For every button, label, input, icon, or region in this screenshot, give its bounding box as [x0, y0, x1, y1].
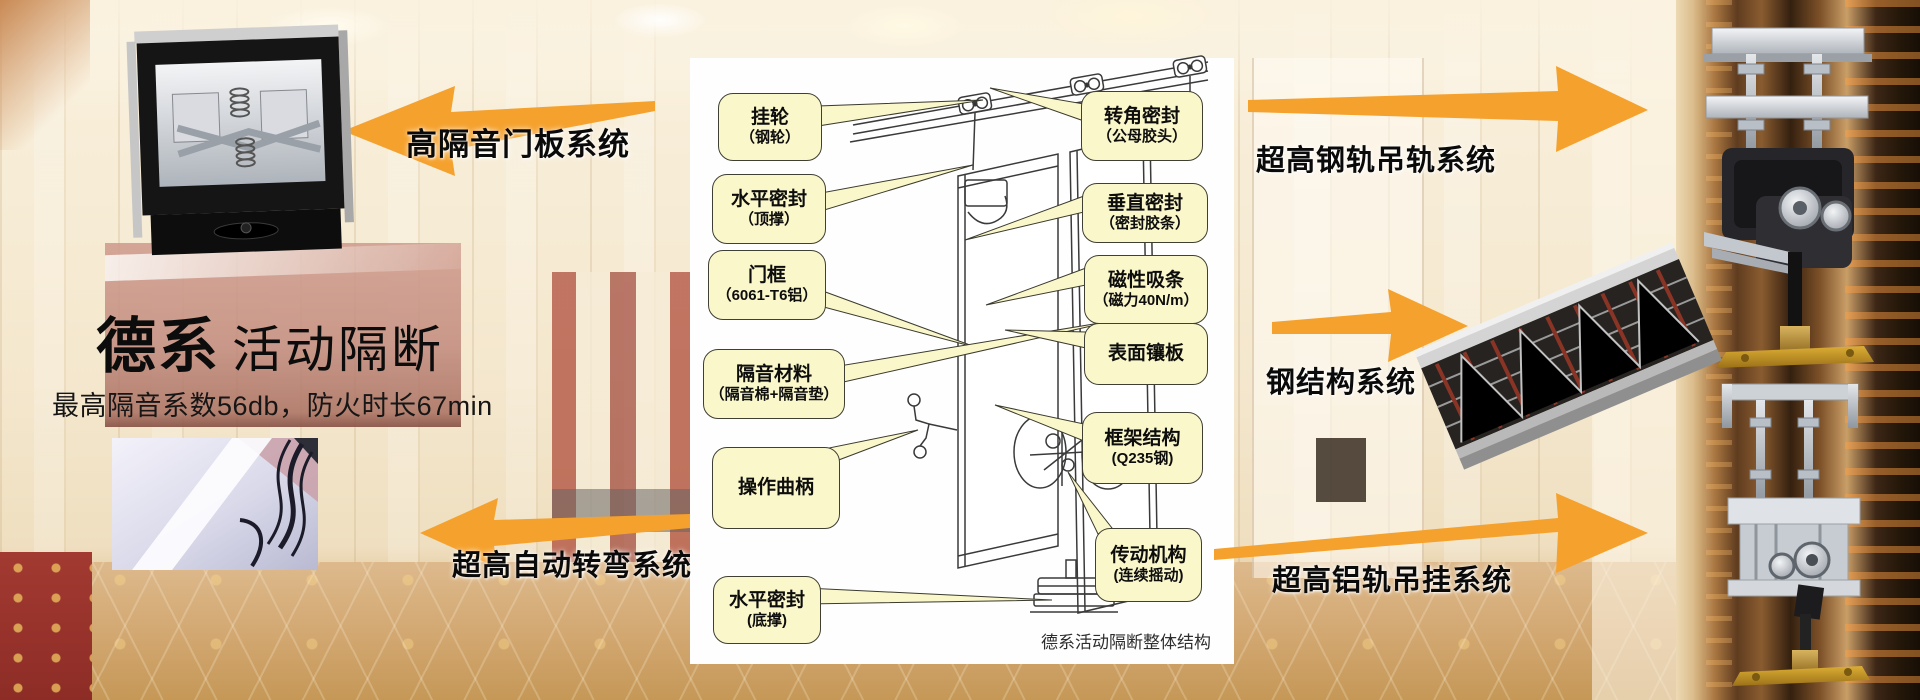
title-subtitle: 最高隔音系数56db，防火时长67min — [52, 384, 493, 423]
callout-text: 水平密封 — [729, 589, 805, 612]
label-steel-rail-system: 超高钢轨吊轨系统 — [1254, 137, 1498, 179]
title-brand: 德系 — [96, 298, 220, 385]
callout-text: 操作曲柄 — [738, 476, 814, 499]
callout-text: （顶撑） — [739, 211, 799, 229]
callout-text: （磁力40N/m） — [1093, 292, 1198, 310]
callout-frame-structure: 框架结构 (Q235钢) — [1082, 412, 1203, 484]
callout-text: 表面镶板 — [1108, 342, 1184, 365]
photo-steel-truss — [1414, 242, 1722, 469]
infographic-canvas: 德系 活动隔断 最高隔音系数56db，防火时长67min 高隔音门板系统 超高自… — [0, 0, 1920, 700]
callout-text: 传动机构 — [1110, 544, 1186, 567]
callout-text: 转角密封 — [1104, 105, 1180, 128]
callout-text: 垂直密封 — [1107, 192, 1183, 215]
callout-text: (Q235钢) — [1112, 450, 1174, 468]
callout-door-frame: 门框 （6061-T6铝） — [708, 250, 826, 320]
title-product: 活动隔断 — [232, 310, 444, 382]
callout-horizontal-seal-top: 水平密封 （顶撑） — [712, 174, 826, 244]
page-title: 德系 活动隔断 — [96, 298, 444, 385]
diagram-caption: 德系活动隔断整体结构 — [1041, 628, 1211, 653]
photo-aluminum-trolley — [1722, 384, 1870, 686]
label-alu-rail-system: 超高铝轨吊挂系统 — [1270, 557, 1514, 599]
callout-text: 水平密封 — [731, 188, 807, 211]
callout-text: (连续摇动) — [1114, 567, 1184, 585]
label-door-panel-system: 高隔音门板系统 — [374, 119, 662, 164]
callout-transmission: 传动机构 (连续摇动) — [1095, 528, 1202, 602]
photo-door-panel-mechanism — [126, 24, 355, 256]
callout-text: （公母胶头） — [1097, 128, 1187, 146]
photo-curved-track — [112, 438, 318, 570]
label-auto-turn-system: 超高自动转弯系统 — [450, 542, 694, 584]
callout-text: （密封胶条） — [1100, 215, 1190, 233]
callout-magnetic-strip: 磁性吸条 （磁力40N/m） — [1084, 255, 1208, 324]
callout-soundproof-material: 隔音材料 （隔音棉+隔音垫） — [703, 349, 845, 419]
callout-text: 磁性吸条 — [1108, 269, 1184, 292]
callout-text: （6061-T6铝） — [717, 287, 818, 305]
callout-corner-seal: 转角密封 （公母胶头） — [1081, 91, 1203, 161]
callout-text: （隔音棉+隔音垫） — [710, 386, 839, 404]
photo-steel-trolley — [1704, 28, 1874, 368]
label-steel-structure-system: 钢结构系统 — [1266, 359, 1416, 401]
callout-surface-panel: 表面镶板 — [1084, 323, 1208, 385]
crank-handle-drawing — [908, 394, 957, 458]
callout-text: （钢轮） — [740, 129, 800, 147]
callout-text: 隔音材料 — [736, 363, 812, 386]
callout-text: 挂轮 — [751, 106, 789, 129]
callout-text: 框架结构 — [1104, 427, 1180, 450]
callout-vertical-seal: 垂直密封 （密封胶条） — [1082, 183, 1208, 243]
callout-hanging-wheel: 挂轮 （钢轮） — [718, 93, 822, 161]
callout-horizontal-seal-bottom: 水平密封 (底撑) — [713, 576, 821, 644]
callout-operating-crank: 操作曲柄 — [712, 447, 840, 529]
callout-text: 门框 — [748, 264, 786, 287]
callout-text: (底撑) — [747, 612, 787, 630]
